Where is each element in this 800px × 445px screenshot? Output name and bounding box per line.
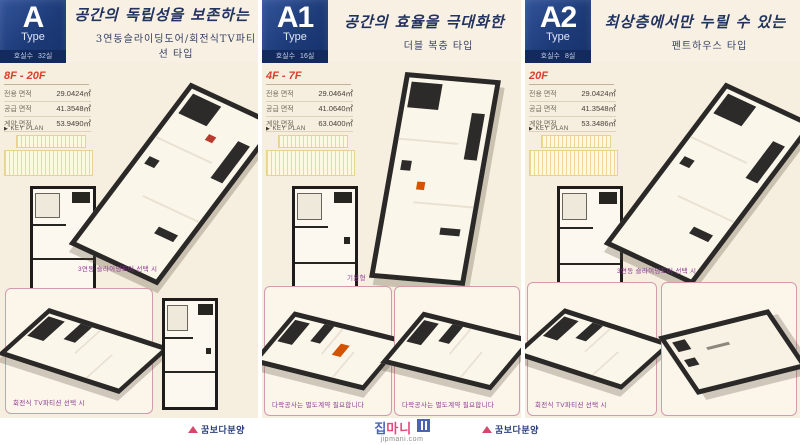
floorplan-brochure: A Type 호실수 32실 공간의 독립성을 보존하는 3연동슬라이딩도어/회…	[0, 0, 800, 441]
unit-2d-plan	[292, 186, 358, 302]
type-a-badge: A Type 호실수 32실	[0, 0, 66, 63]
rooms-label: 호실수	[14, 50, 33, 63]
area-row: 전용 면적 29.0464㎡	[266, 87, 353, 102]
panel-subtitle: 펜트하우스 타입	[591, 37, 800, 52]
building-icon	[417, 419, 430, 432]
option-render-box: 다락공사는 별도계약 필요합니다	[264, 286, 392, 416]
area-value: 29.0464㎡	[318, 88, 353, 99]
rooms-value: 8실	[565, 50, 575, 63]
area-value: 41.3548㎡	[56, 103, 91, 114]
badge-letter: A2	[525, 3, 591, 33]
area-label: 공급 면적	[4, 104, 32, 114]
floor-range: 4F - 7F	[266, 70, 351, 85]
option-render-caption: 회전식 TV파티션 선택 시	[13, 397, 85, 407]
option-render-box: 다락공사는 별도계약 필요합니다	[394, 286, 520, 416]
watermark-domain: jipmani.com	[352, 434, 452, 445]
badge-rooms: 호실수 8실	[525, 50, 591, 63]
area-label: 공급 면적	[266, 104, 294, 114]
area-label: 전용 면적	[266, 89, 294, 99]
keyplan-arrow-icon: ▶	[266, 126, 270, 132]
brand-logo-left: 꿈보다분양	[188, 423, 245, 436]
unit-3d-render-option	[525, 308, 673, 390]
panel-title-block: 공간의 독립성을 보존하는 3연동슬라이딩도어/회전식TV파티션 타입	[66, 0, 258, 63]
brand-name: 꿈보다분양	[201, 423, 245, 436]
unit-3d-render-loft	[262, 311, 407, 390]
type-panels: A Type 호실수 32실 공간의 독립성을 보존하는 3연동슬라이딩도어/회…	[0, 0, 800, 418]
area-row: 공급 면적 41.3548㎡	[4, 102, 91, 117]
rooftop-render-box	[661, 282, 797, 416]
area-label: 전용 면적	[4, 89, 32, 99]
panel-title: 공간의 효율을 극대화한	[328, 11, 521, 32]
area-value: 29.0424㎡	[56, 88, 91, 99]
unit-3d-render-option	[0, 308, 171, 394]
keyplan-elevation-graphic	[266, 135, 353, 176]
brand-name: 꿈보다분양	[495, 423, 539, 436]
panel-type-a1: A1 Type 호실수 16실 공간의 효율을 극대화한 더블 복층 타입 4F…	[262, 0, 521, 418]
rooms-label: 호실수	[276, 50, 295, 63]
keyplan-label: ▶ KEY PLAN	[4, 126, 44, 132]
roof-icon	[188, 426, 198, 433]
keyplan-arrow-icon: ▶	[529, 126, 533, 132]
badge-rooms: 호실수 32실	[0, 50, 66, 63]
area-row: 공급 면적 41.3548㎡	[529, 102, 616, 117]
rooms-value: 16실	[300, 50, 314, 63]
brand-logo-right: 꿈보다분양	[482, 423, 539, 436]
panel-title-block: 공간의 효율을 극대화한 더블 복층 타입	[328, 0, 521, 63]
main-render-caption: 기본형	[347, 272, 366, 282]
badge-letter: A	[0, 3, 66, 33]
area-value: 53.3486㎡	[581, 118, 616, 129]
area-row: 전용 면적 29.0424㎡	[4, 87, 91, 102]
area-row: 공급 면적 41.0640㎡	[266, 102, 353, 117]
unit-3d-render-main	[369, 72, 501, 286]
rooms-label: 호실수	[541, 50, 560, 63]
area-value: 53.9490㎡	[56, 118, 91, 129]
panel-subtitle: 3연동슬라이딩도어/회전식TV파티션 타입	[66, 30, 258, 60]
keyplan-elevation-graphic	[529, 135, 616, 176]
keyplan-arrow-icon: ▶	[4, 126, 8, 132]
type-a1-badge: A1 Type 호실수 16실	[262, 0, 328, 63]
area-row: 전용 면적 29.0424㎡	[529, 87, 616, 102]
badge-type-label: Type	[0, 32, 66, 43]
unit-3d-render-loft	[380, 312, 521, 391]
area-value: 63.0400㎡	[318, 118, 353, 129]
panel-title: 공간의 독립성을 보존하는	[66, 4, 258, 25]
area-label: 전용 면적	[529, 89, 557, 99]
option-render-caption: 회전식 TV파티션 선택 시	[535, 399, 607, 409]
rooftop-3d-render	[658, 309, 800, 395]
area-value: 41.3548㎡	[581, 103, 616, 114]
unit-3d-render-main	[604, 82, 800, 285]
panel-type-a: A Type 호실수 32실 공간의 독립성을 보존하는 3연동슬라이딩도어/회…	[0, 0, 258, 418]
option-render-box: 회전식 TV파티션 선택 시	[527, 282, 657, 416]
keyplan-label: ▶ KEY PLAN	[266, 126, 306, 132]
keyplan-label: ▶ KEY PLAN	[529, 126, 569, 132]
panel-subtitle: 더블 복층 타입	[328, 37, 521, 52]
area-label: 공급 면적	[529, 104, 557, 114]
badge-letter: A1	[262, 3, 328, 33]
option-render-caption: 다락공사는 별도계약 필요합니다	[272, 399, 364, 409]
unit-2d-plan-small	[162, 298, 218, 410]
main-render-caption: 3연동 슬라이딩도어 선택 시	[78, 263, 157, 273]
badge-type-label: Type	[262, 32, 328, 43]
panel-type-a2: A2 Type 호실수 8실 최상층에서만 누릴 수 있는 펜트하우스 타입 2…	[525, 0, 800, 418]
type-a2-badge: A2 Type 호실수 8실	[525, 0, 591, 63]
main-render-caption: 3연동 슬라이딩도어 선택 시	[617, 265, 696, 275]
floor-range: 8F - 20F	[4, 70, 89, 85]
area-value: 41.0640㎡	[318, 103, 353, 114]
option-render-caption: 다락공사는 별도계약 필요합니다	[402, 399, 494, 409]
roof-icon	[482, 426, 492, 433]
floor-range: 20F	[529, 70, 614, 85]
option-render-box: 회전식 TV파티션 선택 시	[5, 288, 153, 414]
footer: 꿈보다분양 집마니 jipmani.com 꿈보다분양	[0, 418, 800, 441]
keyplan-elevation-graphic	[4, 135, 91, 176]
jipmani-watermark: 집마니 jipmani.com	[352, 419, 452, 445]
badge-type-label: Type	[525, 32, 591, 43]
panel-title: 최상층에서만 누릴 수 있는	[591, 11, 800, 32]
area-value: 29.0424㎡	[581, 88, 616, 99]
panel-title-block: 최상층에서만 누릴 수 있는 펜트하우스 타입	[591, 0, 800, 63]
rooms-value: 32실	[38, 50, 52, 63]
badge-rooms: 호실수 16실	[262, 50, 328, 63]
unit-3d-render-main	[69, 82, 258, 285]
